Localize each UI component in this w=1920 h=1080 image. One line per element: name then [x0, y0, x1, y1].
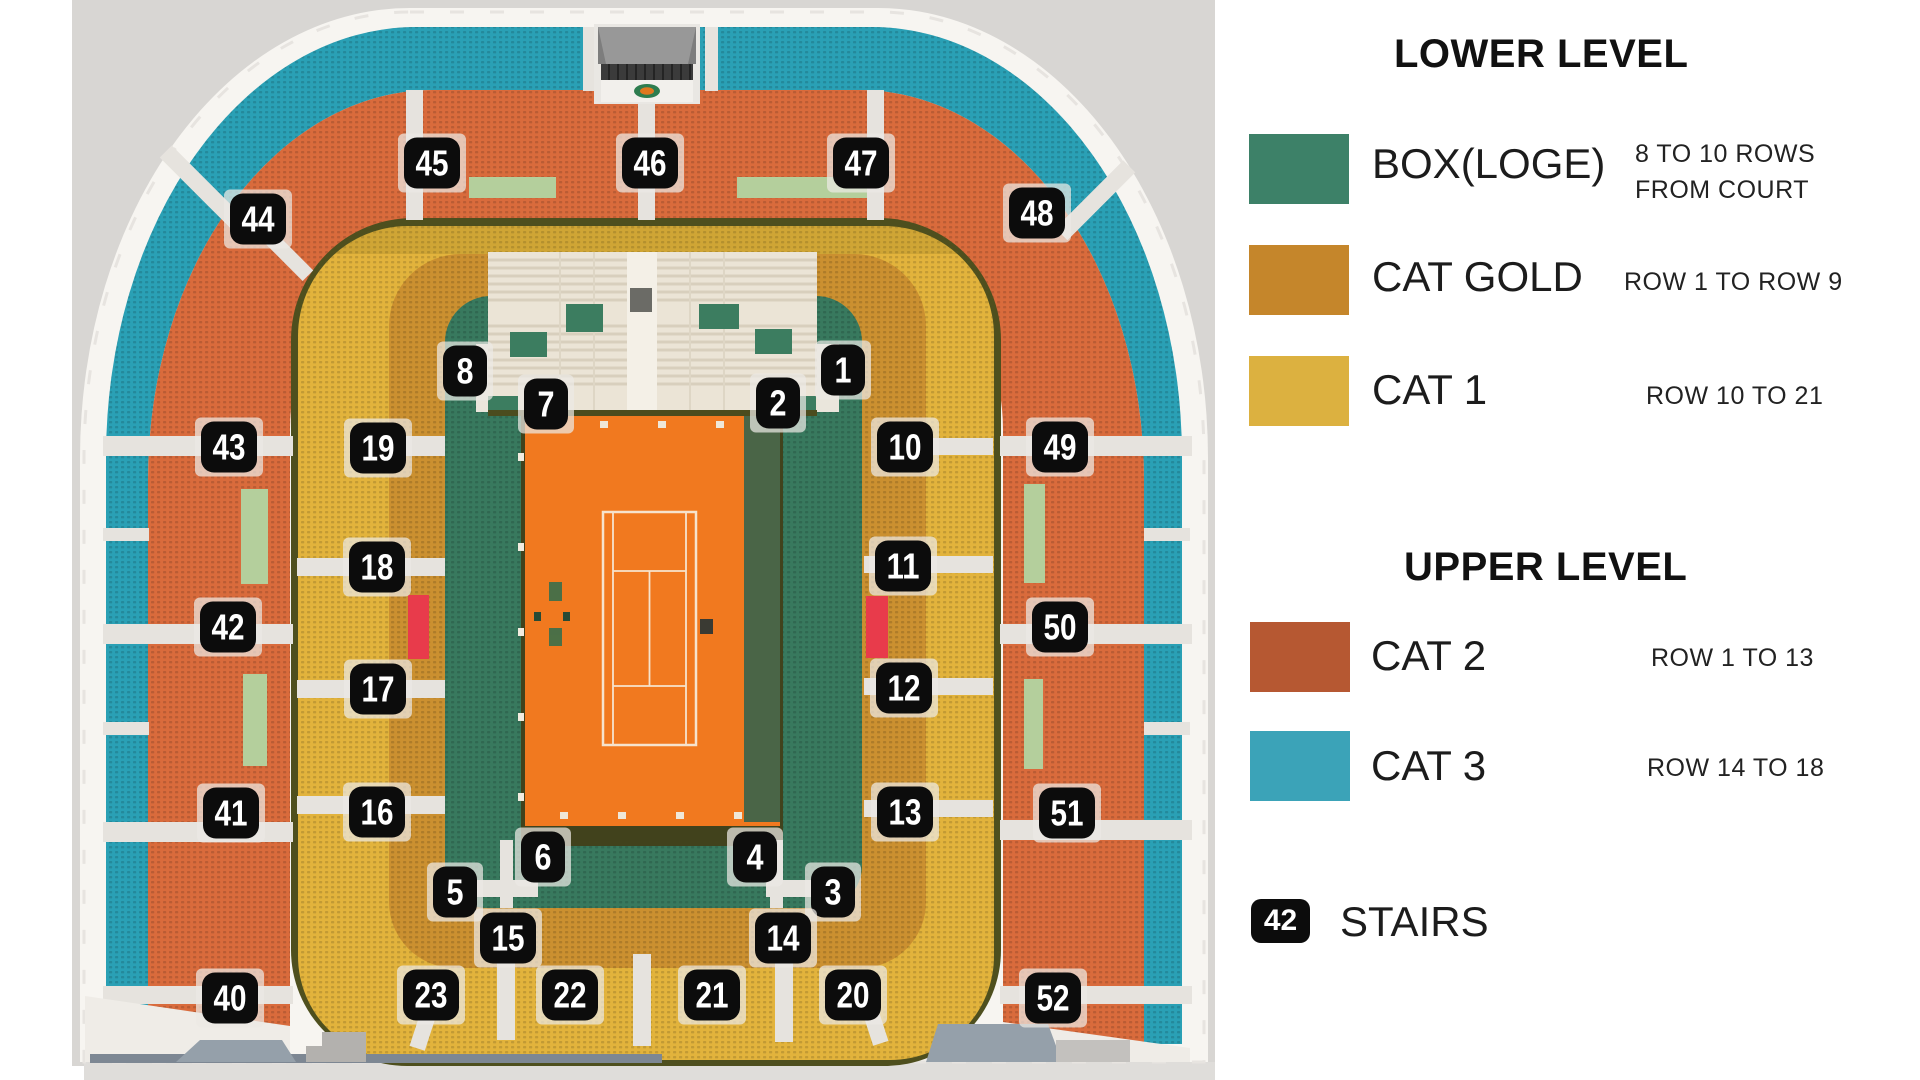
svg-text:49: 49: [1044, 427, 1077, 468]
svg-text:5: 5: [447, 872, 464, 913]
svg-text:13: 13: [889, 792, 922, 833]
svg-text:7: 7: [538, 384, 555, 425]
svg-text:6: 6: [535, 837, 552, 878]
svg-text:4: 4: [747, 837, 764, 878]
svg-text:17: 17: [362, 669, 395, 710]
svg-text:19: 19: [362, 428, 395, 469]
svg-text:43: 43: [213, 427, 246, 468]
svg-text:23: 23: [415, 975, 448, 1016]
svg-text:22: 22: [554, 975, 587, 1016]
svg-text:10: 10: [889, 427, 922, 468]
svg-text:20: 20: [837, 975, 870, 1016]
svg-text:46: 46: [634, 143, 667, 184]
svg-text:50: 50: [1044, 607, 1077, 648]
svg-text:3: 3: [825, 872, 842, 913]
svg-text:11: 11: [887, 546, 920, 587]
svg-text:15: 15: [492, 918, 525, 959]
svg-text:21: 21: [696, 975, 729, 1016]
svg-text:41: 41: [215, 793, 248, 834]
svg-text:8: 8: [457, 351, 474, 392]
svg-text:2: 2: [770, 383, 787, 424]
svg-text:48: 48: [1021, 193, 1054, 234]
svg-text:47: 47: [845, 143, 878, 184]
svg-text:40: 40: [214, 978, 247, 1019]
svg-text:44: 44: [242, 199, 275, 240]
svg-text:14: 14: [767, 918, 800, 959]
svg-text:12: 12: [888, 668, 921, 709]
svg-text:1: 1: [835, 350, 852, 391]
svg-text:18: 18: [361, 547, 394, 588]
svg-text:45: 45: [416, 143, 449, 184]
svg-text:16: 16: [361, 792, 394, 833]
svg-text:51: 51: [1051, 793, 1084, 834]
svg-text:42: 42: [212, 607, 245, 648]
svg-text:52: 52: [1037, 978, 1070, 1019]
